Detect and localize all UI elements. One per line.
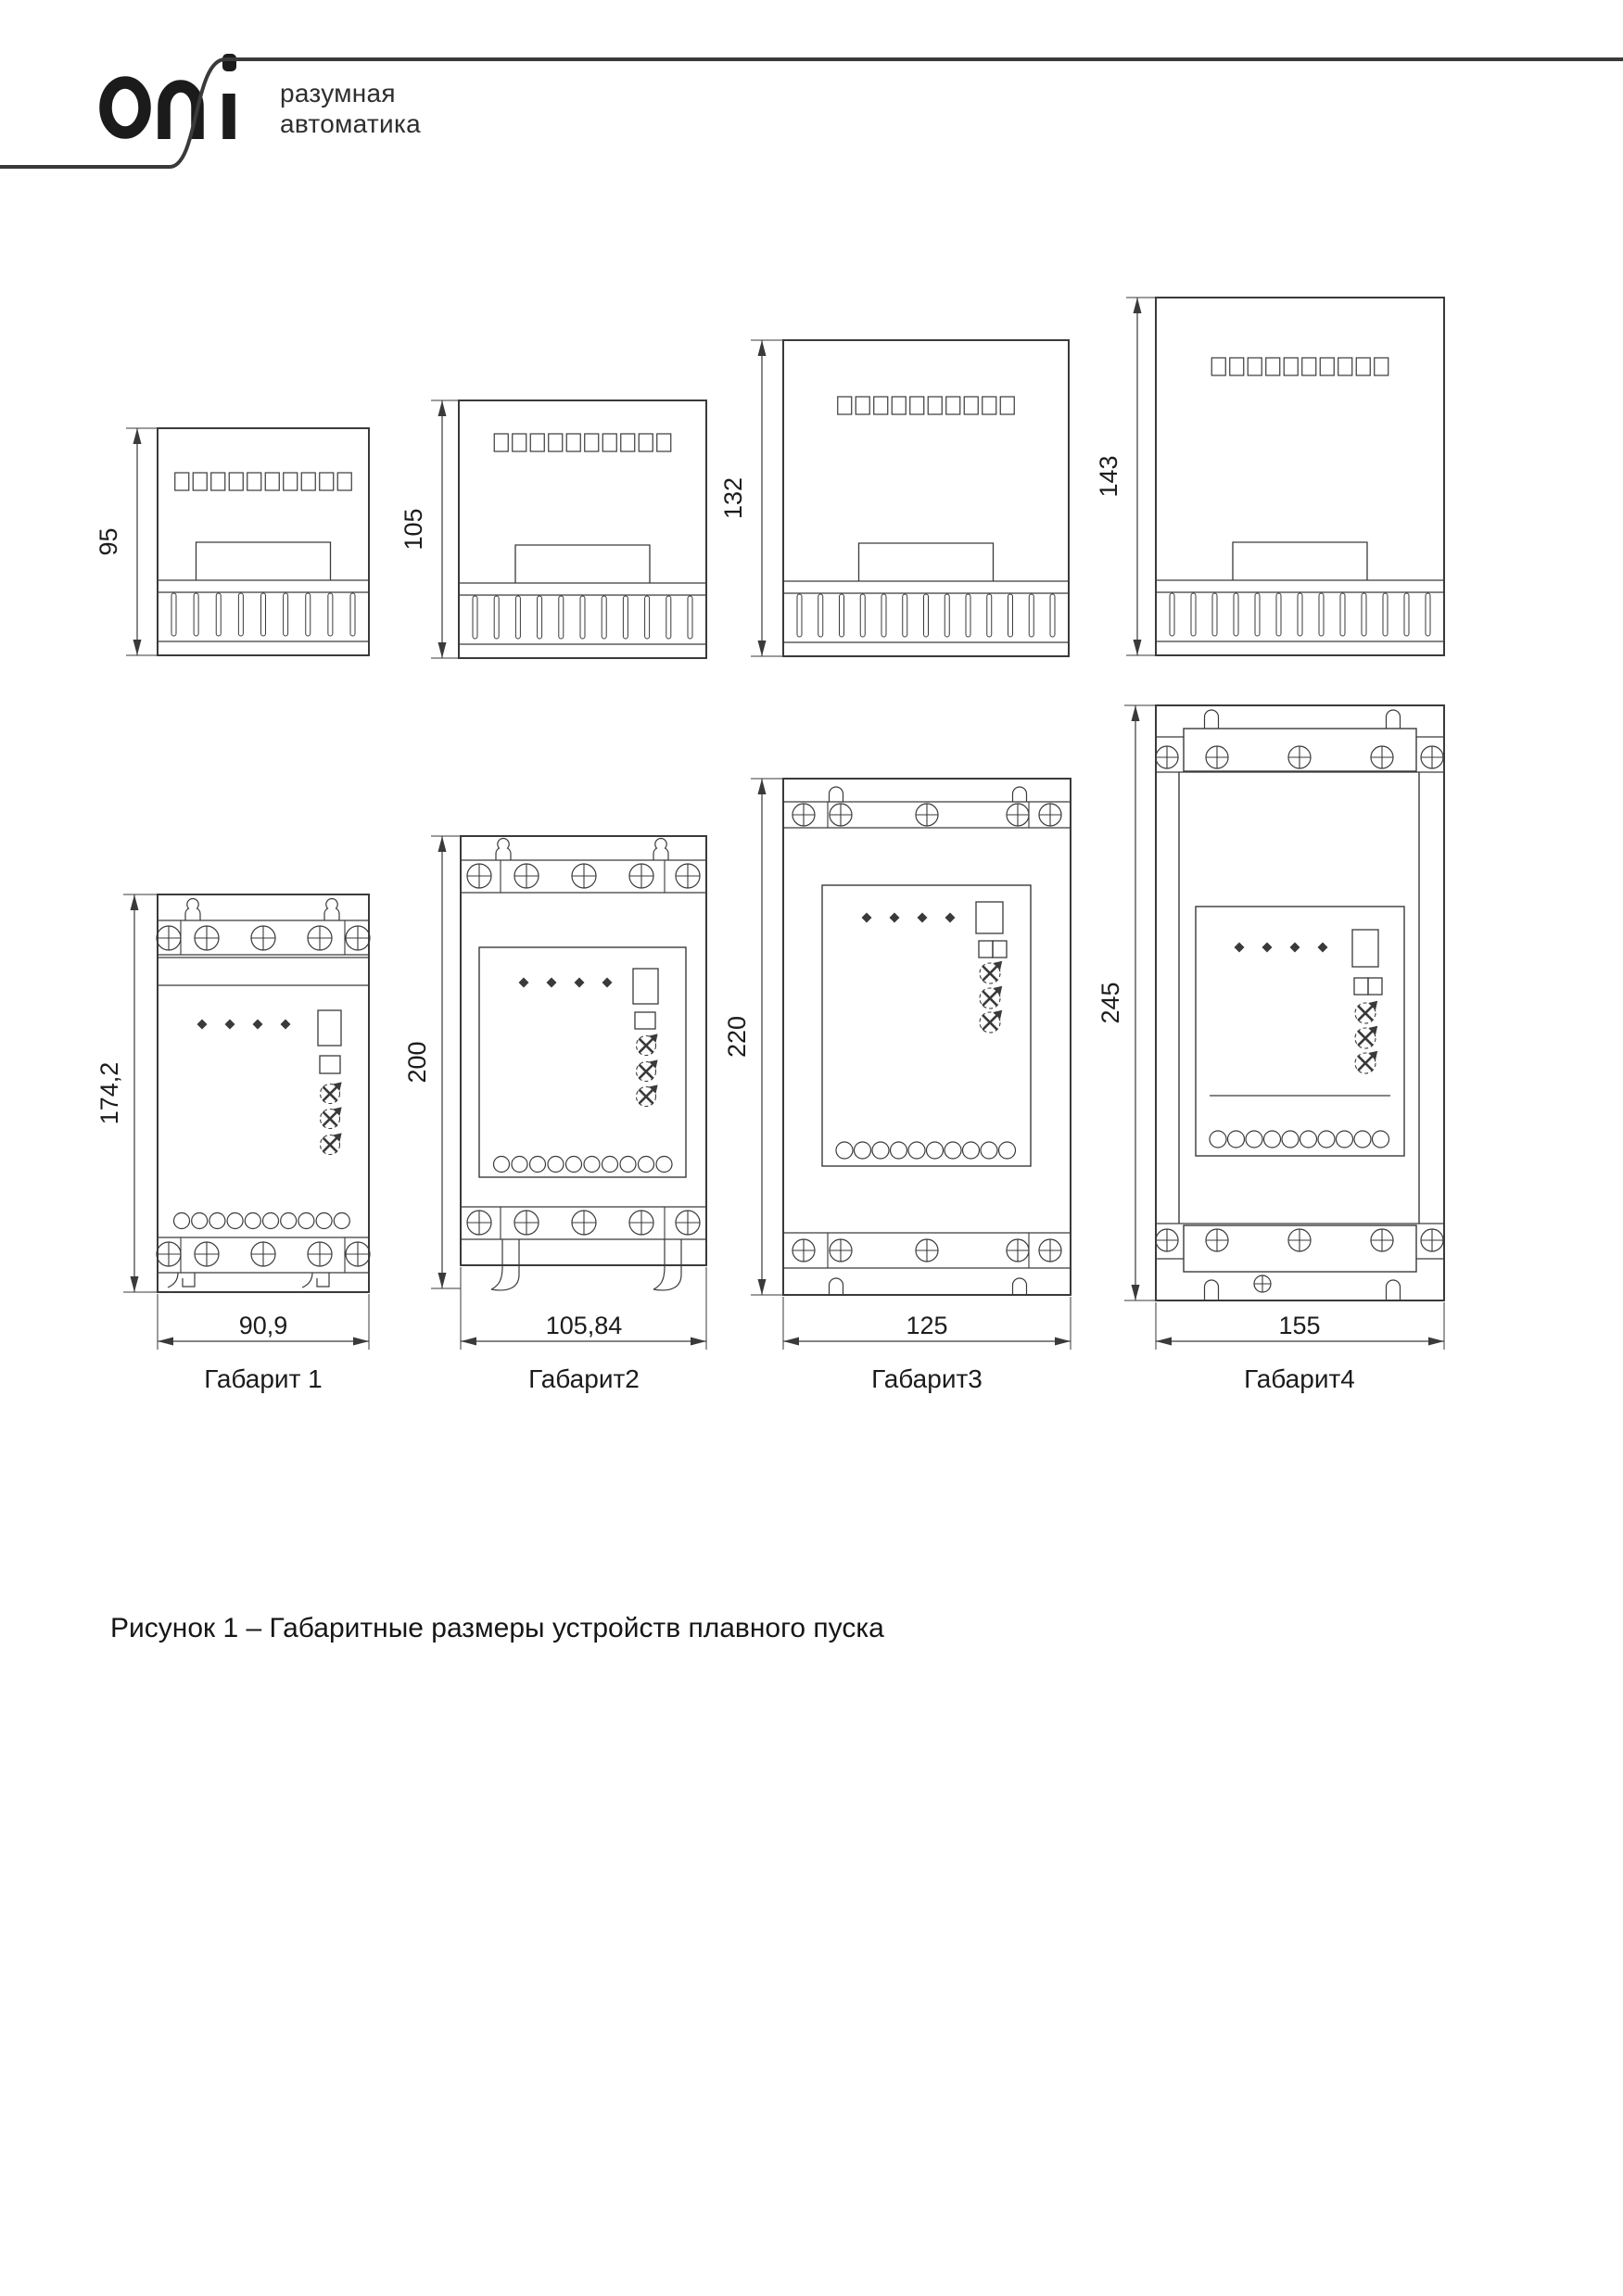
front-height-dim-label: 220 [723,1016,751,1058]
front-view-габарит4: 245155Габарит4 [1097,705,1444,1393]
front-height-dim-label: 174,2 [95,1062,123,1125]
side-height-dim-label: 95 [95,527,122,555]
front-width-dim-label: 125 [906,1312,947,1339]
gabarit-name-label: Габарит 1 [204,1364,323,1393]
gabarit-name-label: Габарит4 [1244,1364,1355,1393]
gabarit-name-label: Габарит2 [528,1364,640,1393]
side-view-gabarit-3: 132 [719,340,1069,656]
side-height-dim-label: 105 [399,508,427,550]
document-page: разумная автоматика 95105132143174,290,9… [0,0,1623,2296]
front-width-dim-label: 90,9 [239,1312,288,1339]
side-height-dim-label: 132 [719,477,747,519]
side-height-dim-label: 143 [1095,455,1122,497]
front-height-dim-label: 200 [403,1041,431,1083]
front-view-габарит-1: 174,290,9Габарит 1 [95,894,370,1393]
side-view-gabarit-4: 143 [1095,298,1444,655]
front-width-dim-label: 105,84 [546,1312,623,1339]
header-divider-curve [0,59,1623,167]
side-view-gabarit-2: 105 [399,400,706,658]
front-width-dim-label: 155 [1278,1312,1320,1339]
front-view-габарит2: 200105,84Габарит2 [403,836,706,1393]
front-height-dim-label: 245 [1097,982,1124,1023]
gabarit-name-label: Габарит3 [871,1364,983,1393]
figure-drawings: 95105132143174,290,9Габарит 1200105,84Га… [0,0,1623,2296]
figure-caption: Рисунок 1 – Габаритные размеры устройств… [110,1613,884,1644]
side-view-gabarit-1: 95 [95,428,369,655]
front-view-габарит3: 220125Габарит3 [723,779,1071,1393]
